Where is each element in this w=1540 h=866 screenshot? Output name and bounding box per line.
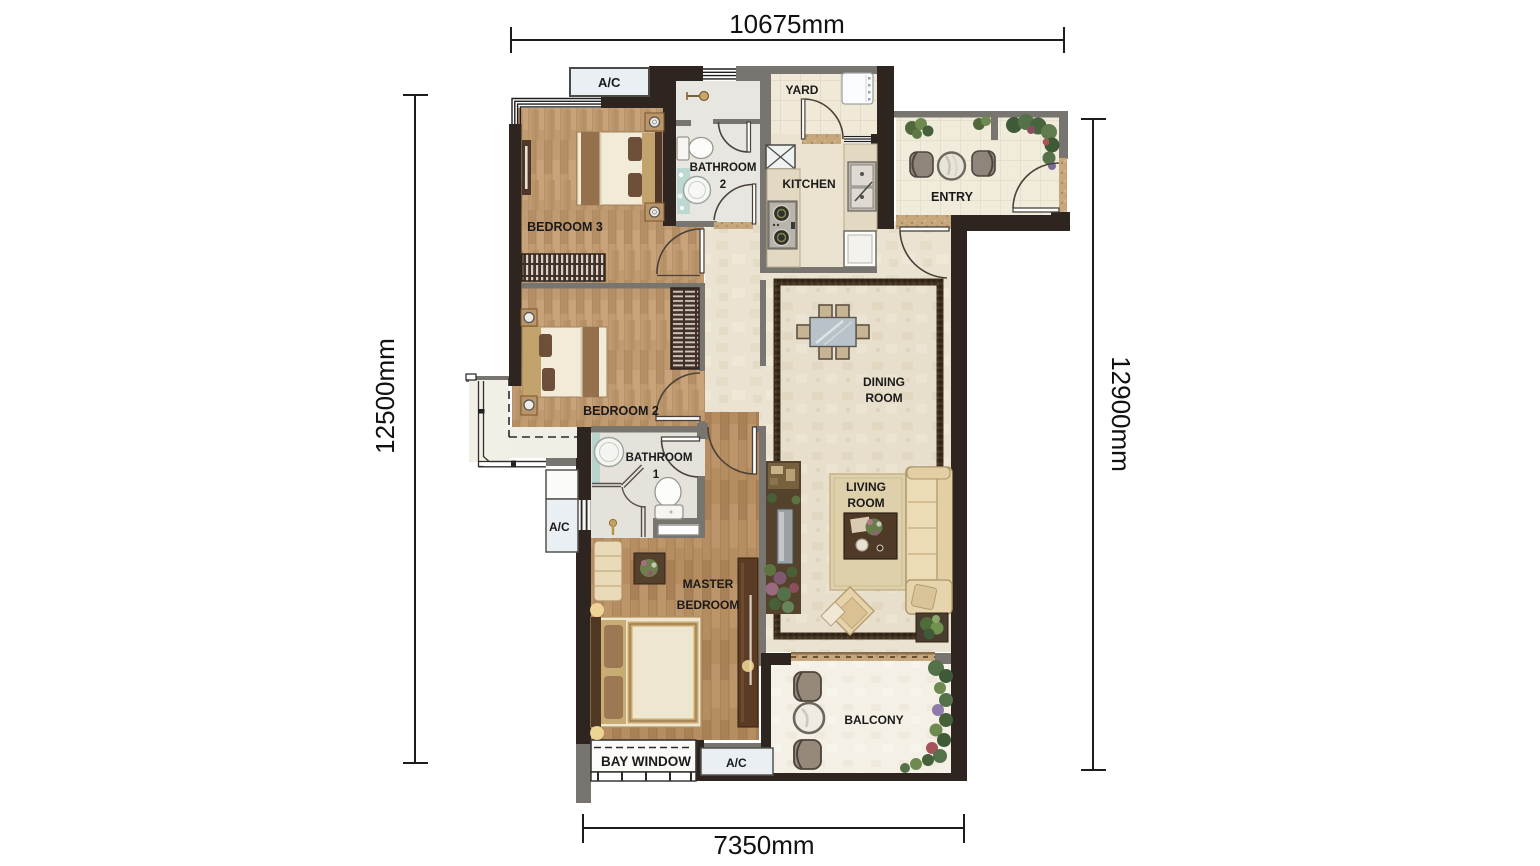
svg-text:BAY WINDOW: BAY WINDOW [601, 754, 691, 769]
svg-text:BEDROOM 3: BEDROOM 3 [527, 220, 603, 234]
svg-text:A/C: A/C [726, 756, 747, 770]
svg-text:BEDROOM: BEDROOM [677, 598, 740, 612]
svg-text:ROOM: ROOM [865, 391, 902, 405]
svg-text:12500mm: 12500mm [370, 338, 400, 454]
svg-text:ROOM: ROOM [847, 496, 884, 510]
svg-text:1: 1 [653, 469, 660, 481]
svg-text:A/C: A/C [549, 520, 570, 534]
svg-text:ENTRY: ENTRY [931, 190, 974, 204]
svg-text:BEDROOM 2: BEDROOM 2 [583, 404, 659, 418]
svg-text:YARD: YARD [786, 83, 819, 97]
svg-text:A/C: A/C [598, 75, 621, 90]
svg-text:LIVING: LIVING [846, 480, 886, 494]
svg-text:MASTER: MASTER [683, 577, 734, 591]
svg-text:BALCONY: BALCONY [844, 713, 903, 727]
svg-text:BATHROOM: BATHROOM [690, 162, 757, 174]
svg-text:10675mm: 10675mm [729, 9, 845, 39]
svg-text:DINING: DINING [863, 375, 905, 389]
svg-text:BATHROOM: BATHROOM [626, 452, 693, 464]
svg-text:7350mm: 7350mm [713, 830, 814, 860]
svg-text:KITCHEN: KITCHEN [782, 177, 835, 191]
svg-text:12900mm: 12900mm [1106, 356, 1136, 472]
svg-text:2: 2 [720, 179, 726, 191]
